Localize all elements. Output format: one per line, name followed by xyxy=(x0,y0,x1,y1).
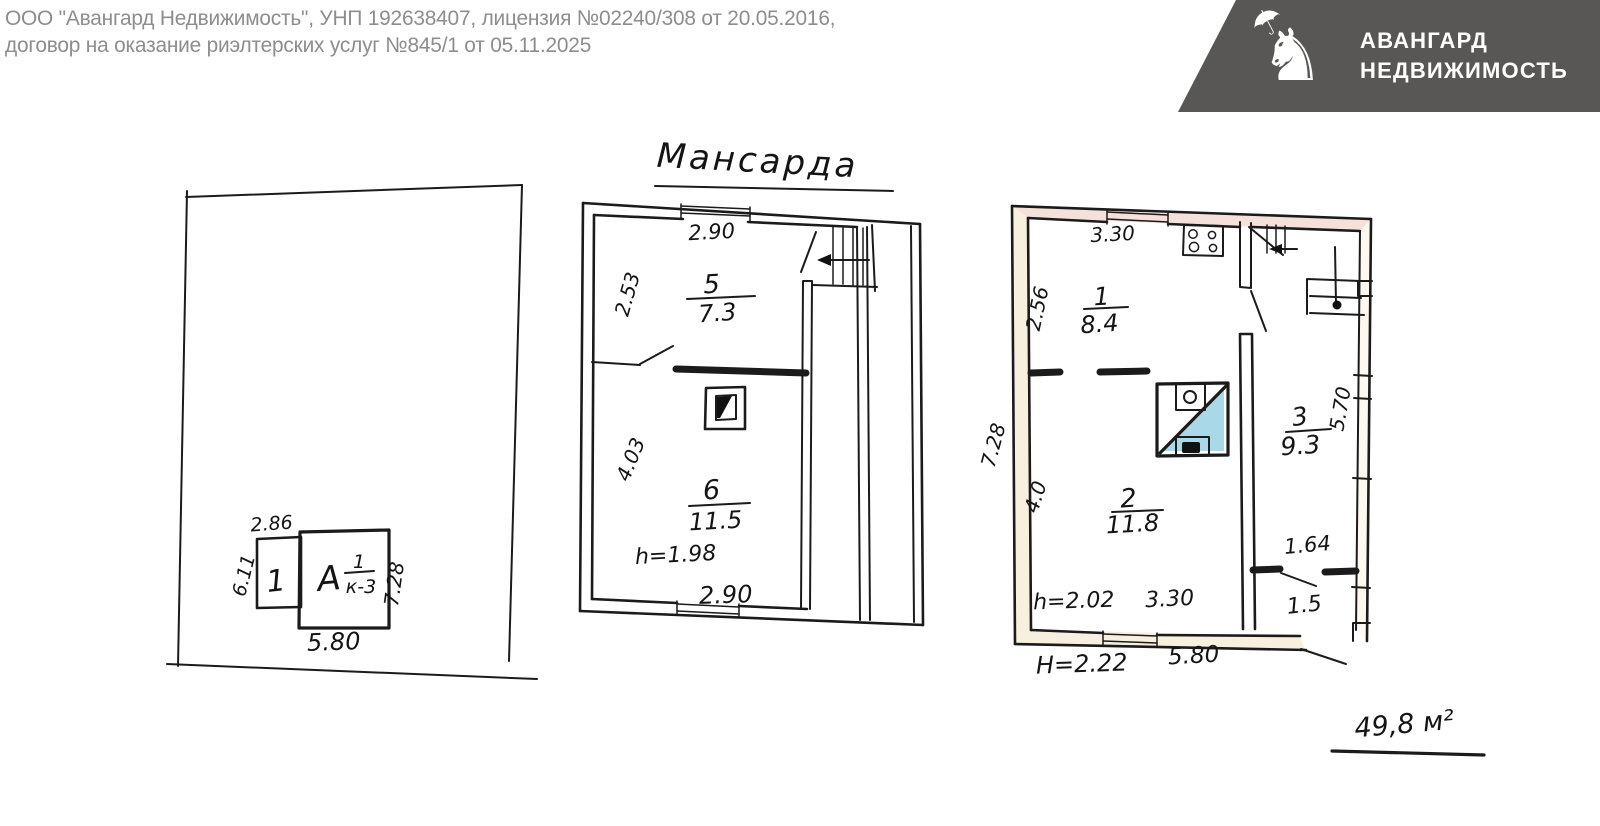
gas-stove-icon xyxy=(1183,225,1223,256)
total-area-value: 49,8 м² xyxy=(1353,705,1455,745)
scanned-floorplan-page: ООО "Авангард Недвижимость", УНП 1926384… xyxy=(0,0,1600,826)
floor-plan: 3.30 2.56 1 8.4 7.28 4.0 2 11.8 3 9.3 5.… xyxy=(976,206,1372,680)
room3-number: 3 xyxy=(1290,401,1310,432)
floor-height-note-outer: Н=2.22 xyxy=(1035,648,1128,679)
hall-area-1-5: 1.5 xyxy=(1286,591,1323,620)
dim-2-90-top: 2.90 xyxy=(688,219,736,245)
dim-3-30-top: 3.30 xyxy=(1090,221,1136,247)
building-frac-top: 1 xyxy=(353,551,365,573)
building-frac-bottom: к-3 xyxy=(346,576,376,598)
room1-area: 8.4 xyxy=(1079,309,1119,340)
furnace-icon xyxy=(1157,383,1228,456)
total-area-note: 49,8 м² xyxy=(1332,705,1484,755)
site-boundary xyxy=(167,185,537,679)
building-letter: А xyxy=(314,558,343,600)
room3-area: 9.3 xyxy=(1280,430,1322,462)
dim-3-30-bottom: 3.30 xyxy=(1145,586,1195,614)
attic-title-underline xyxy=(655,186,893,191)
dim-5-80-site: 5.80 xyxy=(307,627,361,657)
room5-number: 5 xyxy=(703,270,721,301)
total-area-underline xyxy=(1332,751,1484,755)
dim-6-11: 6.11 xyxy=(228,552,260,598)
dim-2-53: 2.53 xyxy=(610,269,645,318)
stair-direction-arrow xyxy=(817,254,831,266)
room6-area: 11.5 xyxy=(688,506,743,537)
room5-area: 7.3 xyxy=(697,298,737,329)
floor-height-note-room: h=2.02 xyxy=(1033,588,1115,616)
attic-partition-and-door xyxy=(592,346,806,373)
dim-4-03: 4.03 xyxy=(611,434,650,484)
attic-plan: Мансарда xyxy=(580,136,923,625)
chimney-icon xyxy=(705,387,745,429)
dim-7-28-floor: 7.28 xyxy=(976,421,1011,470)
attic-title: Мансарда xyxy=(656,136,860,187)
site-plan: 2.86 6.11 1 А 1 к-3 7.28 5.80 xyxy=(167,185,537,679)
furnace-door xyxy=(1182,442,1200,453)
floorplan-drawing: 2.86 6.11 1 А 1 к-3 7.28 5.80 Мансарда xyxy=(0,0,1600,826)
dim-1-64: 1.64 xyxy=(1283,531,1332,559)
dim-7-28-site: 7.28 xyxy=(379,560,409,607)
attic-walls xyxy=(580,203,923,625)
room6-number: 6 xyxy=(702,475,721,507)
dim-5-80-floor: 5.80 xyxy=(1167,642,1220,671)
stair-newel-dot xyxy=(1333,301,1342,310)
room2-area: 11.8 xyxy=(1105,509,1160,540)
dim-2-86: 2.86 xyxy=(250,512,294,537)
dim-2-90-bottom: 2.90 xyxy=(699,580,753,610)
building-frac-line xyxy=(345,571,374,573)
floor-stairs-icon xyxy=(1249,225,1372,315)
attic-height-note: h=1.98 xyxy=(634,541,717,570)
dim-5-70: 5.70 xyxy=(1324,385,1355,433)
building-1-label: 1 xyxy=(265,563,288,600)
